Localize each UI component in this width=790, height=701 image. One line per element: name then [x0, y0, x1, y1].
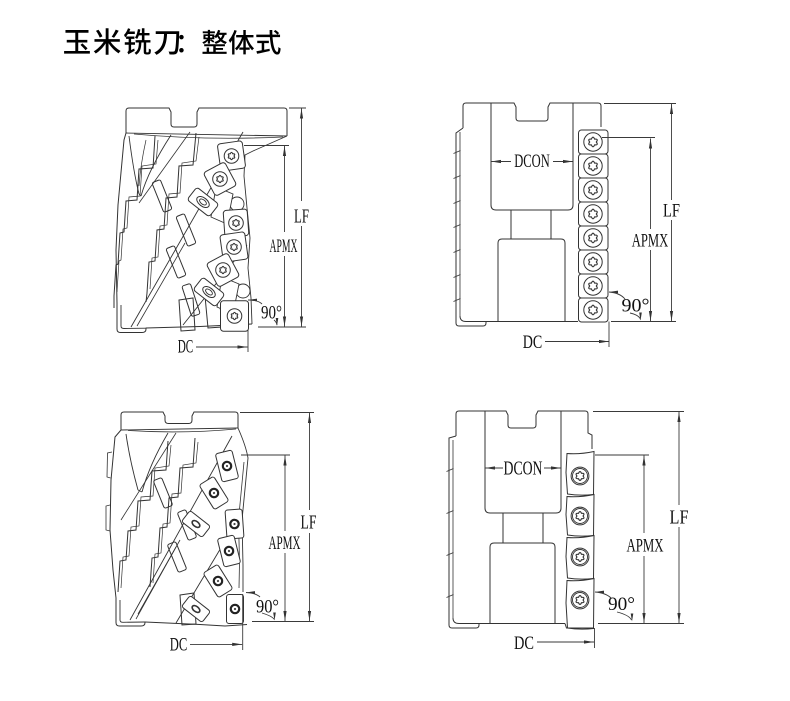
svg-text:LF: LF — [301, 512, 317, 534]
svg-text:DCON: DCON — [514, 151, 550, 172]
svg-text:APMX: APMX — [627, 536, 664, 557]
svg-text:DCON: DCON — [504, 459, 543, 480]
svg-text:DC: DC — [170, 635, 188, 656]
svg-text:APMX: APMX — [632, 231, 669, 252]
svg-text:DC: DC — [178, 337, 194, 358]
svg-text:90°: 90° — [261, 303, 282, 324]
svg-text:DC: DC — [523, 332, 543, 353]
svg-text:LF: LF — [663, 201, 680, 222]
svg-text:90°: 90° — [622, 296, 650, 317]
svg-text:APMX: APMX — [270, 236, 298, 257]
svg-text:DC: DC — [514, 633, 534, 654]
svg-text:90°: 90° — [256, 597, 279, 618]
svg-text:90°: 90° — [608, 594, 635, 615]
svg-text:APMX: APMX — [269, 533, 301, 554]
svg-text:LF: LF — [294, 206, 309, 228]
svg-text:LF: LF — [670, 507, 689, 529]
